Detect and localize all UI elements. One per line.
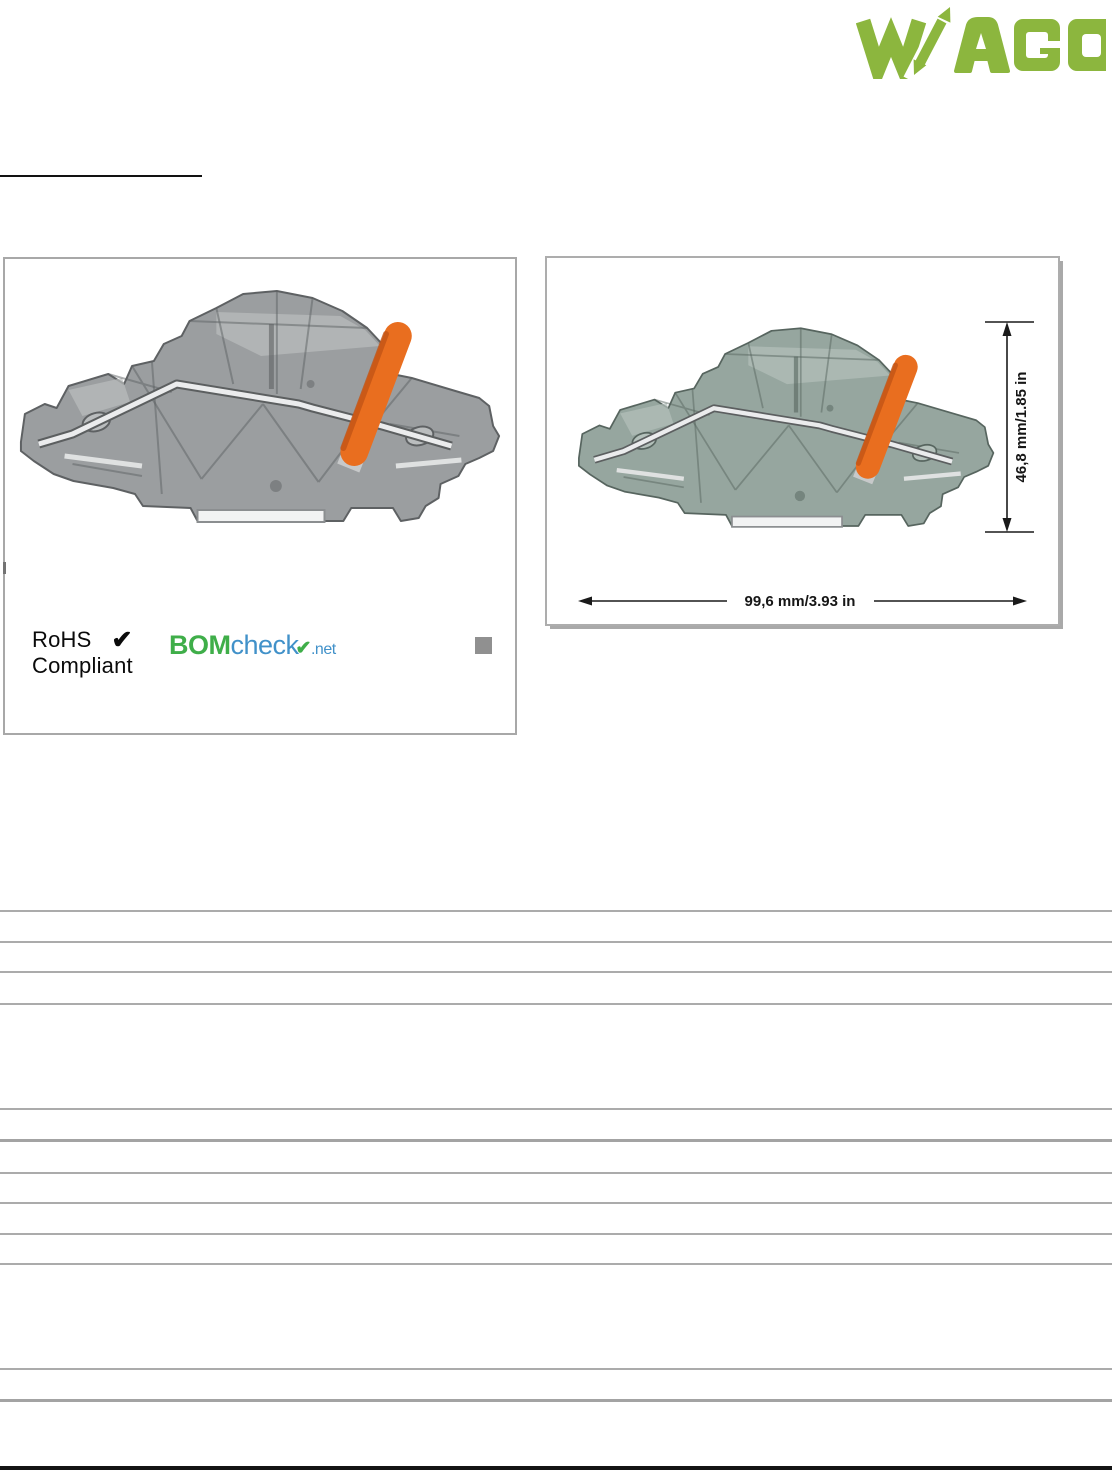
table-rule — [0, 1263, 1112, 1265]
datasheet-page: RoHS✔ Compliant BOMcheck✔.net — [0, 0, 1112, 1472]
table-rule — [0, 1368, 1112, 1370]
bomcheck-bom: BOM — [169, 630, 231, 660]
wago-logo — [856, 5, 1106, 79]
dim-arrow-right-icon — [1013, 597, 1027, 606]
table-rule — [0, 1139, 1112, 1142]
heading-rule — [0, 175, 202, 177]
bomcheck-net: .net — [311, 641, 336, 658]
table-rule — [0, 910, 1112, 912]
rohs-line1: RoHS — [32, 627, 92, 652]
table-rule — [0, 1003, 1112, 1005]
width-dimension-label: 99,6 mm/3.93 in — [745, 593, 856, 610]
dim-arrow-up-icon — [1003, 322, 1012, 336]
dimension-annotations: 46,8 mm/1.85 in 99,6 mm/3.93 in — [547, 258, 1058, 624]
table-rule — [0, 1202, 1112, 1204]
bomcheck-logo: BOMcheck✔.net — [169, 630, 336, 661]
table-rule — [0, 1466, 1112, 1470]
table-rule — [0, 1399, 1112, 1402]
left-product-panel: RoHS✔ Compliant BOMcheck✔.net — [3, 257, 517, 735]
gray-square-marker — [475, 637, 492, 654]
left-border-tick — [3, 562, 6, 574]
height-dimension-label: 46,8 mm/1.85 in — [1013, 372, 1030, 483]
table-rule — [0, 971, 1112, 973]
dim-arrow-left-icon — [578, 597, 592, 606]
rohs-checkmark-icon: ✔ — [112, 626, 133, 654]
dim-arrow-down-icon — [1003, 518, 1012, 532]
table-rule — [0, 1108, 1112, 1110]
table-rule — [0, 1233, 1112, 1235]
table-rule — [0, 941, 1112, 943]
table-rule — [0, 1172, 1112, 1174]
bomcheck-check: check — [231, 630, 299, 660]
rohs-line2: Compliant — [32, 653, 133, 678]
bomcheck-checkmark-icon: ✔ — [296, 638, 311, 659]
rohs-compliant-label: RoHS✔ Compliant — [32, 627, 133, 678]
product-image-left — [13, 264, 509, 564]
right-product-panel: 46,8 mm/1.85 in 99,6 mm/3.93 in — [545, 256, 1060, 626]
